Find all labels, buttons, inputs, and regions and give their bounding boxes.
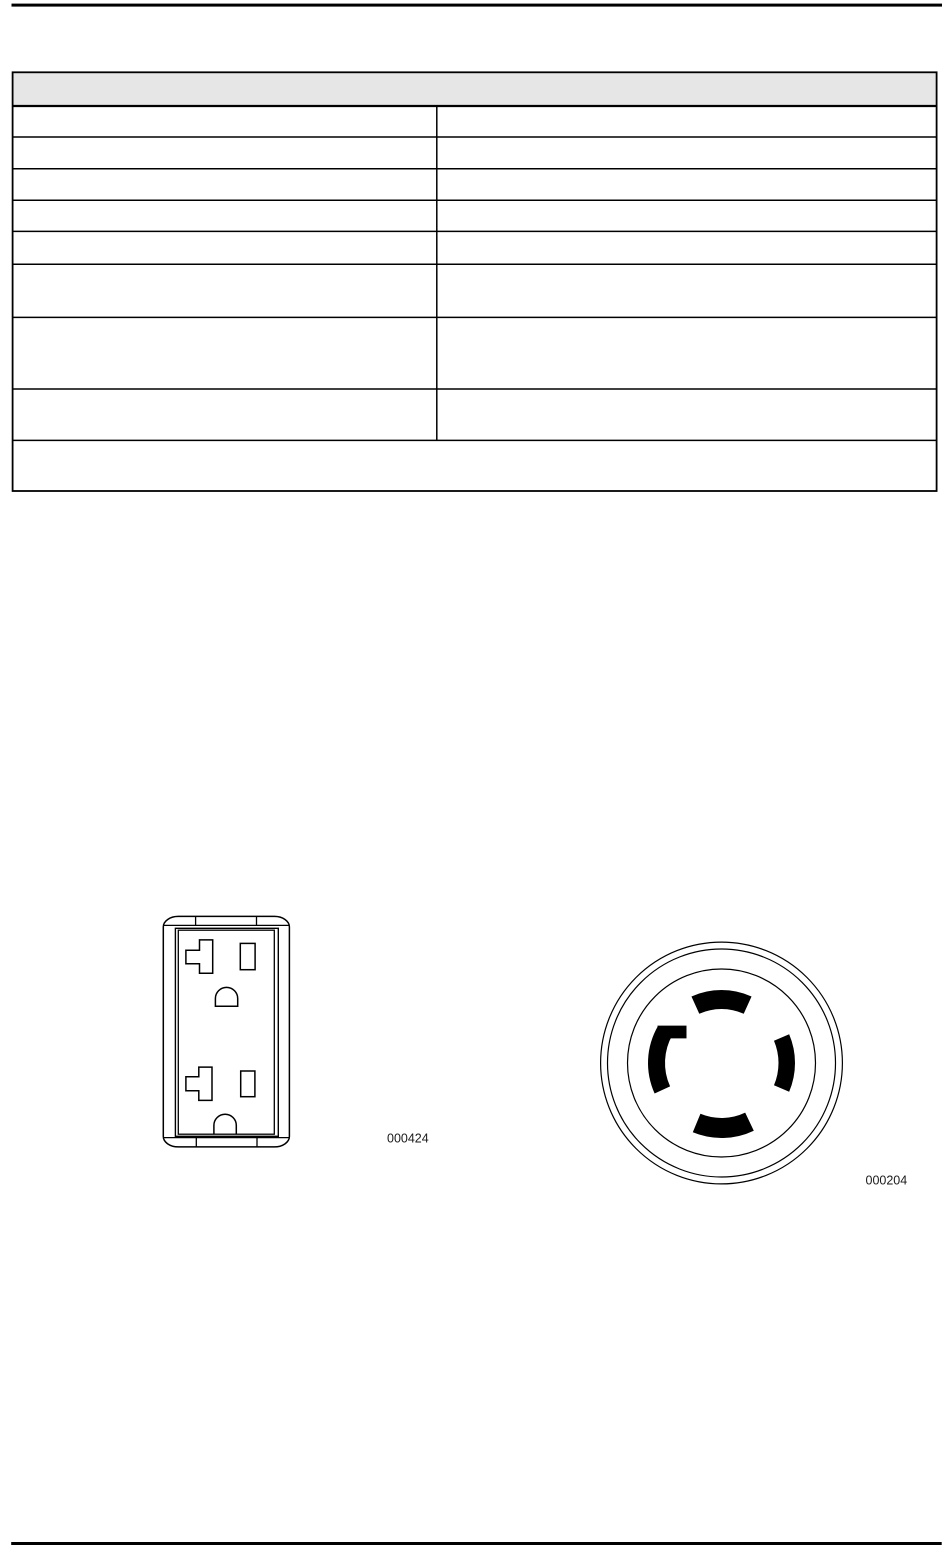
svg-text:000204: 000204 — [866, 1173, 908, 1187]
svg-text:000424: 000424 — [387, 1131, 429, 1145]
